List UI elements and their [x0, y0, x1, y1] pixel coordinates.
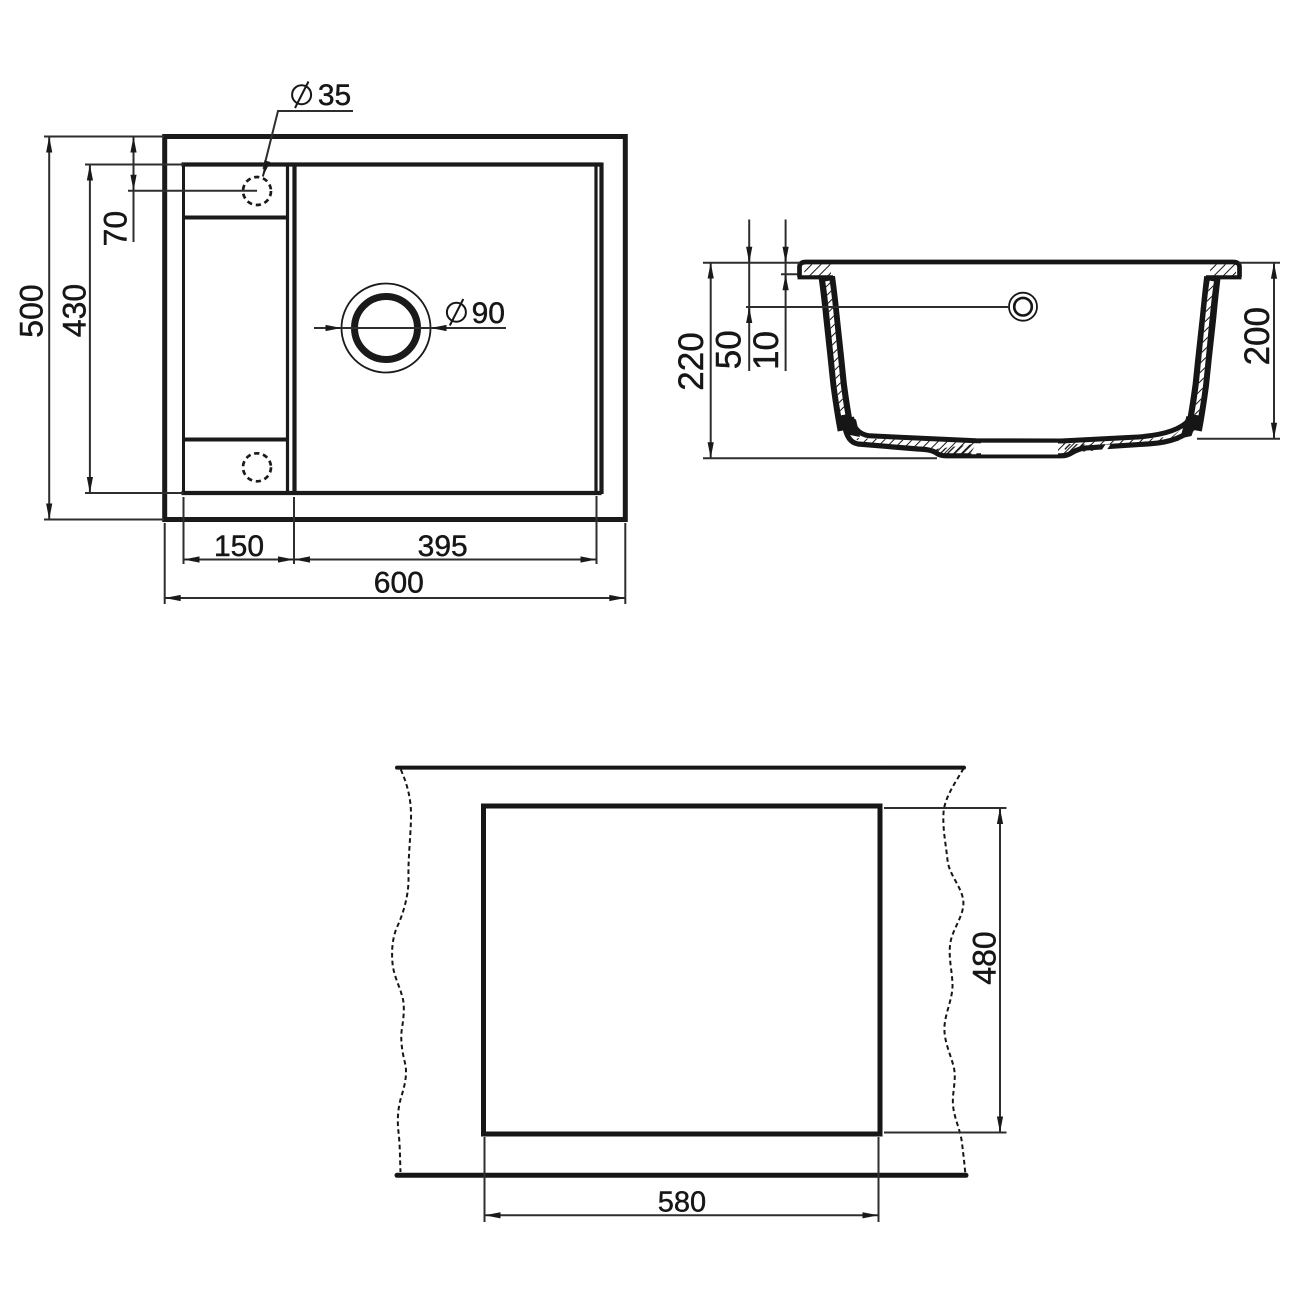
- svg-text:480: 480: [967, 931, 1003, 984]
- svg-text:600: 600: [374, 566, 424, 599]
- svg-text:150: 150: [214, 530, 264, 563]
- svg-text:70: 70: [97, 211, 133, 247]
- svg-text:50: 50: [710, 330, 749, 369]
- svg-text:10: 10: [747, 331, 786, 370]
- svg-text:35: 35: [318, 79, 351, 112]
- svg-text:395: 395: [418, 530, 468, 563]
- svg-text:220: 220: [672, 332, 711, 390]
- svg-text:500: 500: [13, 284, 49, 337]
- svg-text:90: 90: [472, 297, 505, 330]
- svg-text:580: 580: [658, 1187, 706, 1219]
- svg-text:200: 200: [1238, 307, 1277, 365]
- svg-text:430: 430: [56, 284, 92, 337]
